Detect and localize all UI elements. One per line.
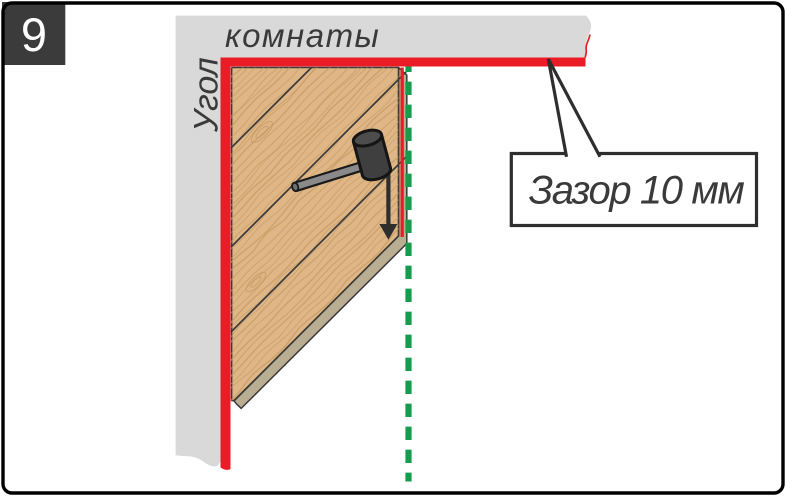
svg-text:9: 9: [21, 8, 47, 61]
svg-text:Зазор 10 мм: Зазор 10 мм: [529, 169, 745, 213]
svg-text:комнаты: комнаты: [225, 17, 380, 54]
svg-text:Угол: Угол: [188, 57, 226, 133]
